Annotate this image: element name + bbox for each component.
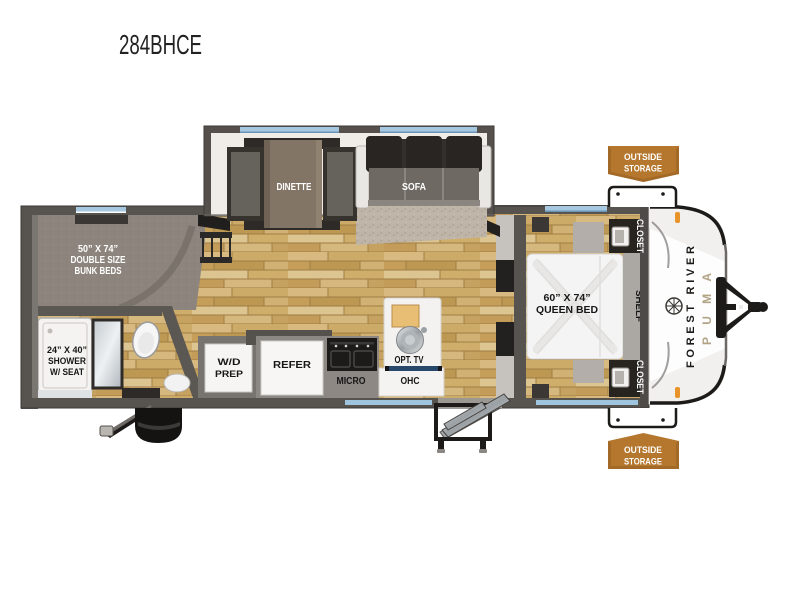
svg-text:STORAGE: STORAGE [624, 164, 662, 175]
svg-text:60” X 74”: 60” X 74” [544, 292, 591, 304]
svg-text:24” X 40”: 24” X 40” [47, 345, 87, 355]
svg-text:QUEEN BED: QUEEN BED [536, 304, 598, 316]
svg-text:PREP: PREP [215, 369, 244, 380]
svg-text:DOUBLE SIZE: DOUBLE SIZE [71, 255, 126, 266]
svg-text:REFER: REFER [273, 360, 312, 371]
svg-text:OPT. TV: OPT. TV [395, 355, 424, 366]
svg-text:SHOWER: SHOWER [48, 356, 86, 366]
svg-text:STORAGE: STORAGE [624, 457, 662, 468]
svg-text:BUNK BEDS: BUNK BEDS [75, 266, 122, 277]
svg-text:W/ SEAT: W/ SEAT [50, 367, 84, 377]
svg-text:284BHCE: 284BHCE [119, 29, 202, 60]
svg-text:SOFA: SOFA [402, 182, 426, 193]
svg-text:CLOSET: CLOSET [635, 219, 645, 253]
svg-text:MICRO: MICRO [337, 376, 366, 387]
svg-text:FOREST RIVER: FOREST RIVER [685, 246, 697, 368]
svg-text:OUTSIDE: OUTSIDE [624, 445, 662, 456]
svg-text:DINETTE: DINETTE [277, 182, 312, 193]
svg-text:OUTSIDE: OUTSIDE [624, 152, 662, 163]
svg-text:CLOSET: CLOSET [635, 360, 645, 394]
svg-text:OHC: OHC [401, 376, 420, 387]
svg-text:50” X 74”: 50” X 74” [78, 244, 118, 255]
svg-text:W/D: W/D [218, 357, 241, 368]
